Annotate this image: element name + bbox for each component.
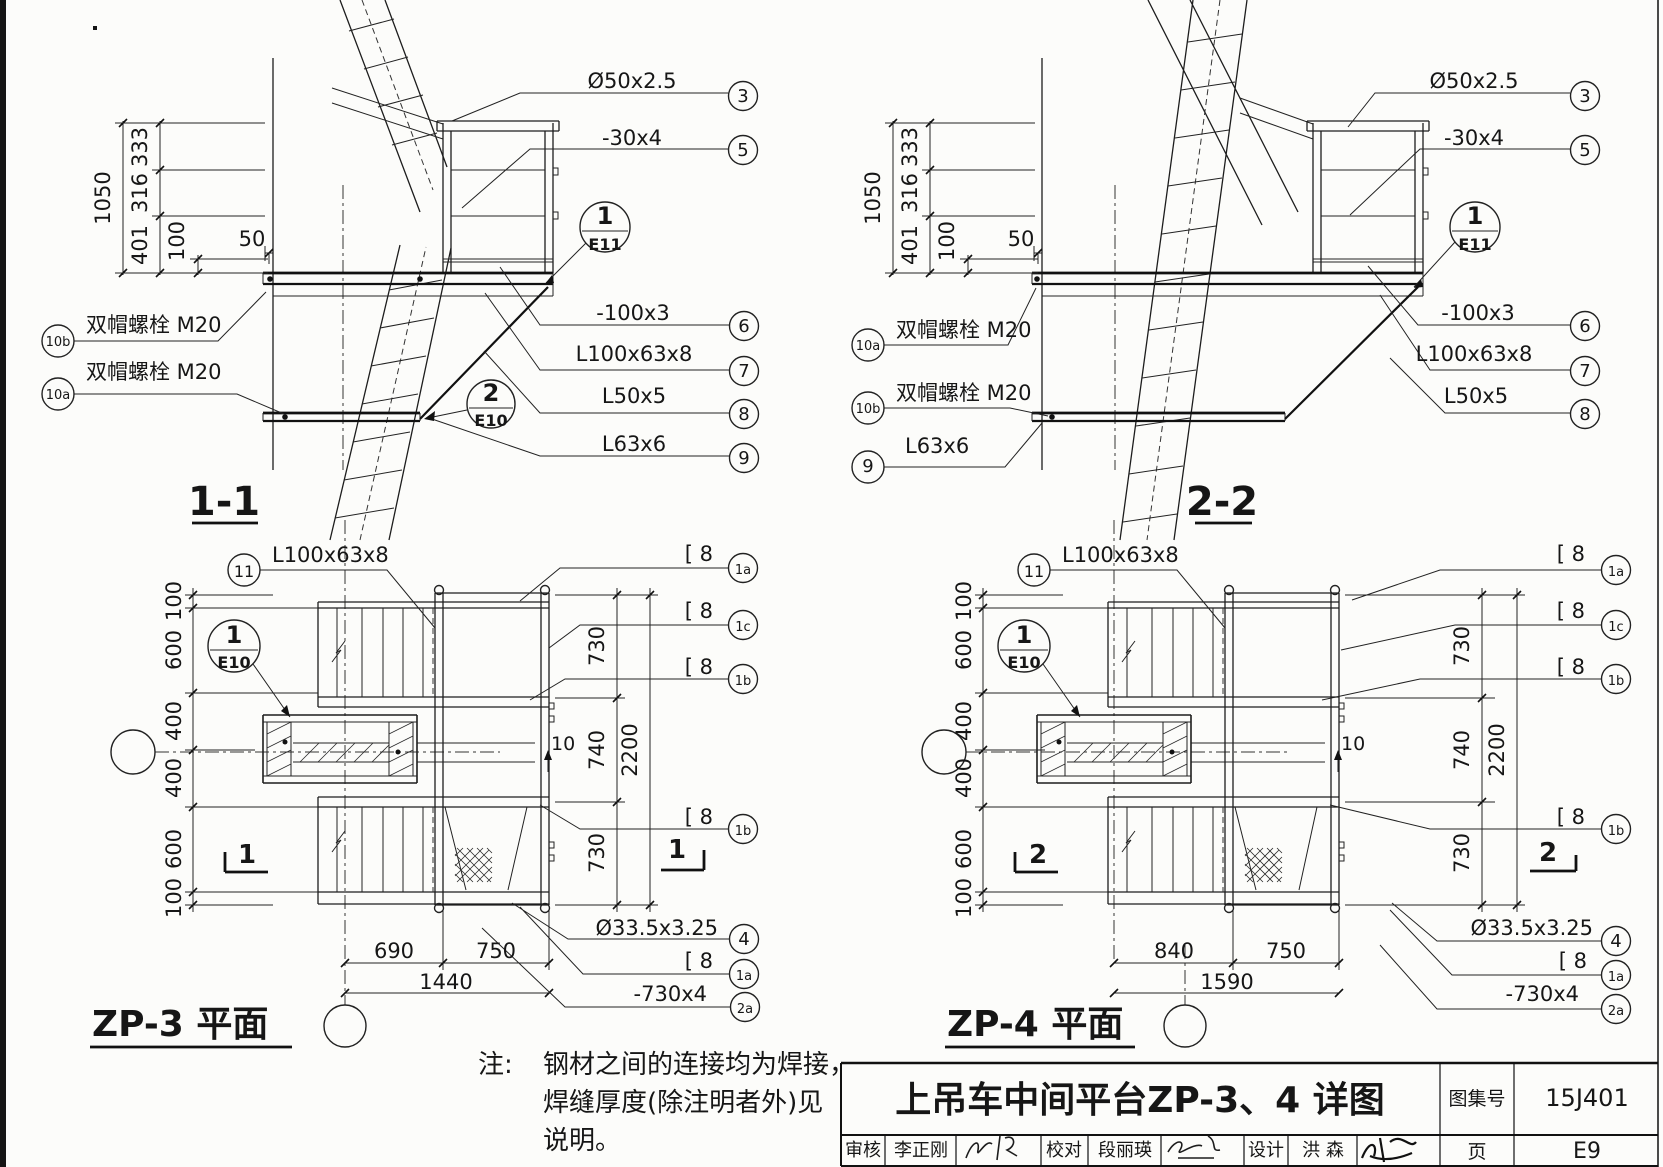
floor-and-lower-beam-top	[263, 273, 553, 413]
zp3-num-2a: 2a	[737, 1002, 753, 1017]
s22-dim-316: 316	[898, 173, 922, 213]
zp4-weld-10: 10	[1341, 733, 1365, 755]
title-block-main-title: 上吊车中间平台ZP-3、4 详图	[895, 1080, 1384, 1121]
bolt-dot	[283, 740, 288, 745]
s22-label-flat100x3: -100x3	[1441, 301, 1514, 325]
crane-beam-flanges	[263, 722, 417, 776]
beam-caps	[1032, 273, 1423, 421]
drawing-sheet: 上吊车中间平台ZP-3、4 详图 图集号 15J401 审核 李正刚 校对 段丽…	[0, 0, 1663, 1167]
zp3-dim-400b: 400	[162, 758, 186, 798]
atlas-number-label: 图集号	[1448, 1088, 1505, 1110]
view-title-zp3: ZP-3 平面	[92, 1004, 268, 1045]
axis-bubble-left	[111, 730, 155, 774]
s22-num-6: 6	[1579, 316, 1590, 337]
zp4-num-4: 4	[1610, 931, 1621, 952]
bolt-dot	[1049, 414, 1055, 420]
zp4-label-L100x63x8: L100x63x8	[1062, 543, 1179, 567]
break-marks	[1122, 641, 1135, 852]
signature-reviewer	[966, 1136, 1017, 1160]
s11-label-L100x63x8: L100x63x8	[576, 342, 693, 366]
zp3-label-pipe33: Ø33.5x3.25	[596, 916, 718, 940]
s11-label-L63x6: L63x6	[602, 432, 666, 456]
zp4-detail-e10-num: 1	[1016, 621, 1033, 649]
title-block: 上吊车中间平台ZP-3、4 详图 图集号 15J401 审核 李正刚 校对 段丽…	[841, 1063, 1658, 1166]
mesh-hatch	[455, 848, 492, 882]
zp4-label-pipe33: Ø33.5x3.25	[1471, 916, 1593, 940]
view-title-2-2: 2-2	[1186, 479, 1258, 525]
zp3-num-1a: 1a	[735, 563, 751, 578]
floor-and-lower-beam-top	[1032, 273, 1423, 413]
zp3-cut-1-right: 1	[668, 835, 686, 865]
s11-dim-333: 333	[128, 127, 152, 167]
s11-num-10a: 10a	[46, 388, 71, 403]
s11-detail-e11-num: 1	[597, 202, 614, 230]
ladder-stringers	[330, 0, 451, 540]
s22-dim-50: 50	[1008, 227, 1035, 251]
s11-num-5: 5	[737, 140, 748, 161]
atlas-number-value: 15J401	[1545, 1084, 1628, 1112]
zp3-label-c8-1c: [ 8	[685, 599, 713, 623]
s22-label-flat30x4: -30x4	[1444, 126, 1504, 150]
zp4-dim-1590: 1590	[1200, 970, 1253, 994]
zp4-num-1b2: 1b	[1608, 824, 1625, 839]
zp3-num-11: 11	[234, 562, 254, 581]
zp3-dim-740: 740	[585, 730, 609, 770]
cage-rails-kickplate	[443, 168, 558, 262]
s11-label-L50x5: L50x5	[602, 384, 666, 408]
zp4-dim-730b: 730	[1450, 833, 1474, 873]
cage-posts-toprail	[437, 121, 559, 273]
s11-detail-e11-ref: E11	[588, 235, 621, 254]
zp4-dim-600b: 600	[952, 829, 976, 869]
planks-and-details	[337, 608, 554, 892]
s11-detail-e10-ref: E10	[474, 411, 507, 430]
s22-num-3: 3	[1579, 86, 1590, 107]
s22-num-10b: 10b	[856, 402, 881, 417]
s11-label-flat100x3: -100x3	[596, 301, 669, 325]
s22-dim-333: 333	[898, 127, 922, 167]
s22-label-pipe50: Ø50x2.5	[1429, 69, 1518, 93]
s11-dim-100: 100	[165, 221, 189, 261]
s11-dim-401: 401	[128, 225, 152, 265]
axis-bubble-bottom	[1164, 1005, 1206, 1047]
reviewer-label: 审核	[845, 1140, 881, 1161]
s22-num-5: 5	[1579, 140, 1590, 161]
plan-zp4-drawing	[922, 520, 1631, 1047]
s11-dim-50: 50	[239, 227, 266, 251]
zp4-label-c8-1b1: [ 8	[1557, 655, 1585, 679]
scan-speck	[93, 26, 97, 30]
zp4-dim-2200: 2200	[1485, 723, 1509, 776]
s11-dim-316: 316	[128, 173, 152, 213]
note-line-3: 说明。	[543, 1126, 621, 1156]
s22-num-7: 7	[1579, 361, 1590, 382]
mesh-hatch	[1245, 848, 1282, 882]
zp3-label-c8-1b2: [ 8	[685, 805, 713, 829]
cage-brace-lines	[332, 88, 443, 139]
floor-and-lower-beam-bottom	[263, 284, 553, 421]
zp4-label-c8-1b2: [ 8	[1557, 805, 1585, 829]
diagonal-brace	[1285, 287, 1418, 419]
bolt-dot	[267, 276, 273, 282]
zp3-num-4: 4	[738, 929, 749, 950]
zp3-dim-600b: 600	[162, 829, 186, 869]
general-note: 注: 钢材之间的连接均为焊接， 焊缝厚度(除注明者外)见 说明。	[478, 1050, 855, 1156]
zp3-label-c8-1a: [ 8	[685, 542, 713, 566]
s11-detail-e10-num: 2	[483, 379, 500, 407]
zp3-dim-100b: 100	[162, 878, 186, 918]
s22-detail-e11-num: 1	[1467, 202, 1484, 230]
designer-name: 洪 森	[1302, 1140, 1344, 1161]
zp3-dim-2200: 2200	[618, 723, 642, 776]
zp3-dim-1440: 1440	[419, 970, 472, 994]
zp4-dim-100t: 100	[952, 581, 976, 621]
s11-num-6: 6	[738, 316, 749, 337]
zp4-label-730x4: -730x4	[1506, 982, 1579, 1006]
s22-num-10a: 10a	[856, 339, 881, 354]
zp4-num-1b1: 1b	[1608, 674, 1625, 689]
zp3-detail-e10-num: 1	[226, 621, 243, 649]
view-title-1-1: 1-1	[188, 479, 260, 525]
s22-dim-100: 100	[935, 221, 959, 261]
planks-and-details	[1127, 608, 1344, 892]
s11-num-10b: 10b	[46, 335, 71, 350]
zp4-dim-840: 840	[1154, 939, 1194, 963]
cage-posts-toprail	[1307, 121, 1429, 273]
zp3-label-L100x63x8: L100x63x8	[272, 543, 389, 567]
s22-dim-1050: 1050	[861, 171, 885, 224]
zp4-label-c8-1a: [ 8	[1557, 542, 1585, 566]
s11-num-7: 7	[738, 361, 749, 382]
zp3-dim-730t: 730	[585, 626, 609, 666]
s22-label-bolt-10b: 双帽螺栓 M20	[896, 381, 1032, 405]
signature-designer	[1362, 1138, 1416, 1162]
zp3-label-c8-1a2: [ 8	[685, 949, 713, 973]
bolt-dot	[1057, 740, 1062, 745]
bolt-dot	[1034, 276, 1040, 282]
annotation-text-layer: Ø50x2.53-30x45-100x36L100x63x87L50x58L63…	[46, 69, 1625, 1019]
ladder-hidden-stringer	[1147, 0, 1220, 540]
bolt-dot	[396, 750, 401, 755]
page-number: E9	[1573, 1139, 1601, 1164]
s22-detail-e11-ref: E11	[1458, 235, 1491, 254]
s22-num-9: 9	[862, 456, 873, 477]
s22-num-8: 8	[1579, 404, 1590, 425]
zp3-dim-730b: 730	[585, 833, 609, 873]
reviewer-name: 李正刚	[894, 1140, 948, 1161]
ladder-rungs	[1123, 34, 1242, 522]
checker-name: 段丽瑛	[1098, 1140, 1152, 1161]
s22-label-bolt-10a: 双帽螺栓 M20	[896, 318, 1032, 342]
bolt-dot	[282, 414, 288, 420]
s11-label-bolt-10b: 双帽螺栓 M20	[86, 313, 222, 337]
zp3-dim-600t: 600	[162, 630, 186, 670]
zp3-detail-e10-ref: E10	[217, 653, 250, 672]
zp4-dim-100b: 100	[952, 878, 976, 918]
designer-label: 设计	[1248, 1140, 1284, 1161]
zp4-dim-730t: 730	[1450, 626, 1474, 666]
beam-caps	[263, 273, 553, 421]
note-line-2: 焊缝厚度(除注明者外)见	[543, 1088, 823, 1118]
bolt-dot	[1170, 750, 1175, 755]
bolt-dot	[417, 276, 423, 282]
s11-num-9: 9	[738, 448, 749, 469]
crane-beam-outline	[263, 715, 417, 783]
zp3-cut-1-left: 1	[238, 840, 256, 870]
s11-dim-1050: 1050	[91, 171, 115, 224]
signature-checker	[1168, 1136, 1220, 1158]
dimension-ticks	[979, 591, 1521, 997]
zp4-detail-e10-ref: E10	[1007, 653, 1040, 672]
zp3-dim-690: 690	[374, 939, 414, 963]
zp4-label-c8-1c: [ 8	[1557, 599, 1585, 623]
s11-label-bolt-10a: 双帽螺栓 M20	[86, 360, 222, 384]
s11-label-flat30x4: -30x4	[602, 126, 662, 150]
zp3-num-1b2: 1b	[735, 824, 752, 839]
zp3-weld-10: 10	[551, 733, 575, 755]
zp4-num-1a2: 1a	[1608, 970, 1624, 985]
zp4-num-1c: 1c	[1608, 620, 1623, 635]
zp4-cut-2-left: 2	[1029, 840, 1047, 870]
cage-rails-kickplate	[1313, 168, 1428, 262]
zp4-dim-400t: 400	[952, 701, 976, 741]
s22-label-L50x5: L50x5	[1444, 384, 1508, 408]
zp4-dim-400b: 400	[952, 758, 976, 798]
checker-label: 校对	[1046, 1140, 1082, 1161]
zp3-num-1a2: 1a	[736, 969, 752, 984]
zp4-num-1a: 1a	[1608, 565, 1624, 580]
zp4-num-11: 11	[1024, 562, 1044, 581]
zp4-label-c8-1a2: [ 8	[1559, 949, 1587, 973]
zp4-num-2a: 2a	[1608, 1004, 1624, 1019]
s11-num-3: 3	[737, 86, 748, 107]
zp3-dim-100t: 100	[162, 581, 186, 621]
zp4-cut-2-right: 2	[1539, 838, 1557, 868]
plan-zp3-drawing	[90, 520, 760, 1047]
dimension-lines	[975, 588, 1525, 993]
s22-label-L63x6: L63x6	[905, 434, 969, 458]
zp3-num-1c: 1c	[735, 620, 750, 635]
s22-dim-401: 401	[898, 225, 922, 265]
axis-bubble-bottom	[324, 1005, 366, 1047]
view-title-zp4: ZP-4 平面	[947, 1004, 1123, 1045]
zp4-dim-740: 740	[1450, 730, 1474, 770]
floor-and-lower-beam-bottom	[1032, 284, 1423, 421]
zp3-label-c8-1b1: [ 8	[685, 655, 713, 679]
s11-num-8: 8	[738, 404, 749, 425]
page-label: 页	[1467, 1141, 1486, 1163]
zp3-num-1b1: 1b	[735, 674, 752, 689]
s11-label-pipe50: Ø50x2.5	[587, 69, 676, 93]
zp4-dim-600t: 600	[952, 630, 976, 670]
zp3-dim-400t: 400	[162, 701, 186, 741]
s22-label-L100x63x8: L100x63x8	[1416, 342, 1533, 366]
hatching	[267, 722, 413, 776]
zp3-label-730x4: -730x4	[634, 982, 707, 1006]
scan-left-border	[0, 0, 6, 1167]
drawing-canvas: 上吊车中间平台ZP-3、4 详图 图集号 15J401 审核 李正刚 校对 段丽…	[0, 0, 1663, 1167]
zp4-dim-750: 750	[1266, 939, 1306, 963]
zp3-dim-750: 750	[476, 939, 516, 963]
note-prefix: 注:	[478, 1050, 513, 1080]
note-line-1: 钢材之间的连接均为焊接，	[543, 1050, 855, 1080]
